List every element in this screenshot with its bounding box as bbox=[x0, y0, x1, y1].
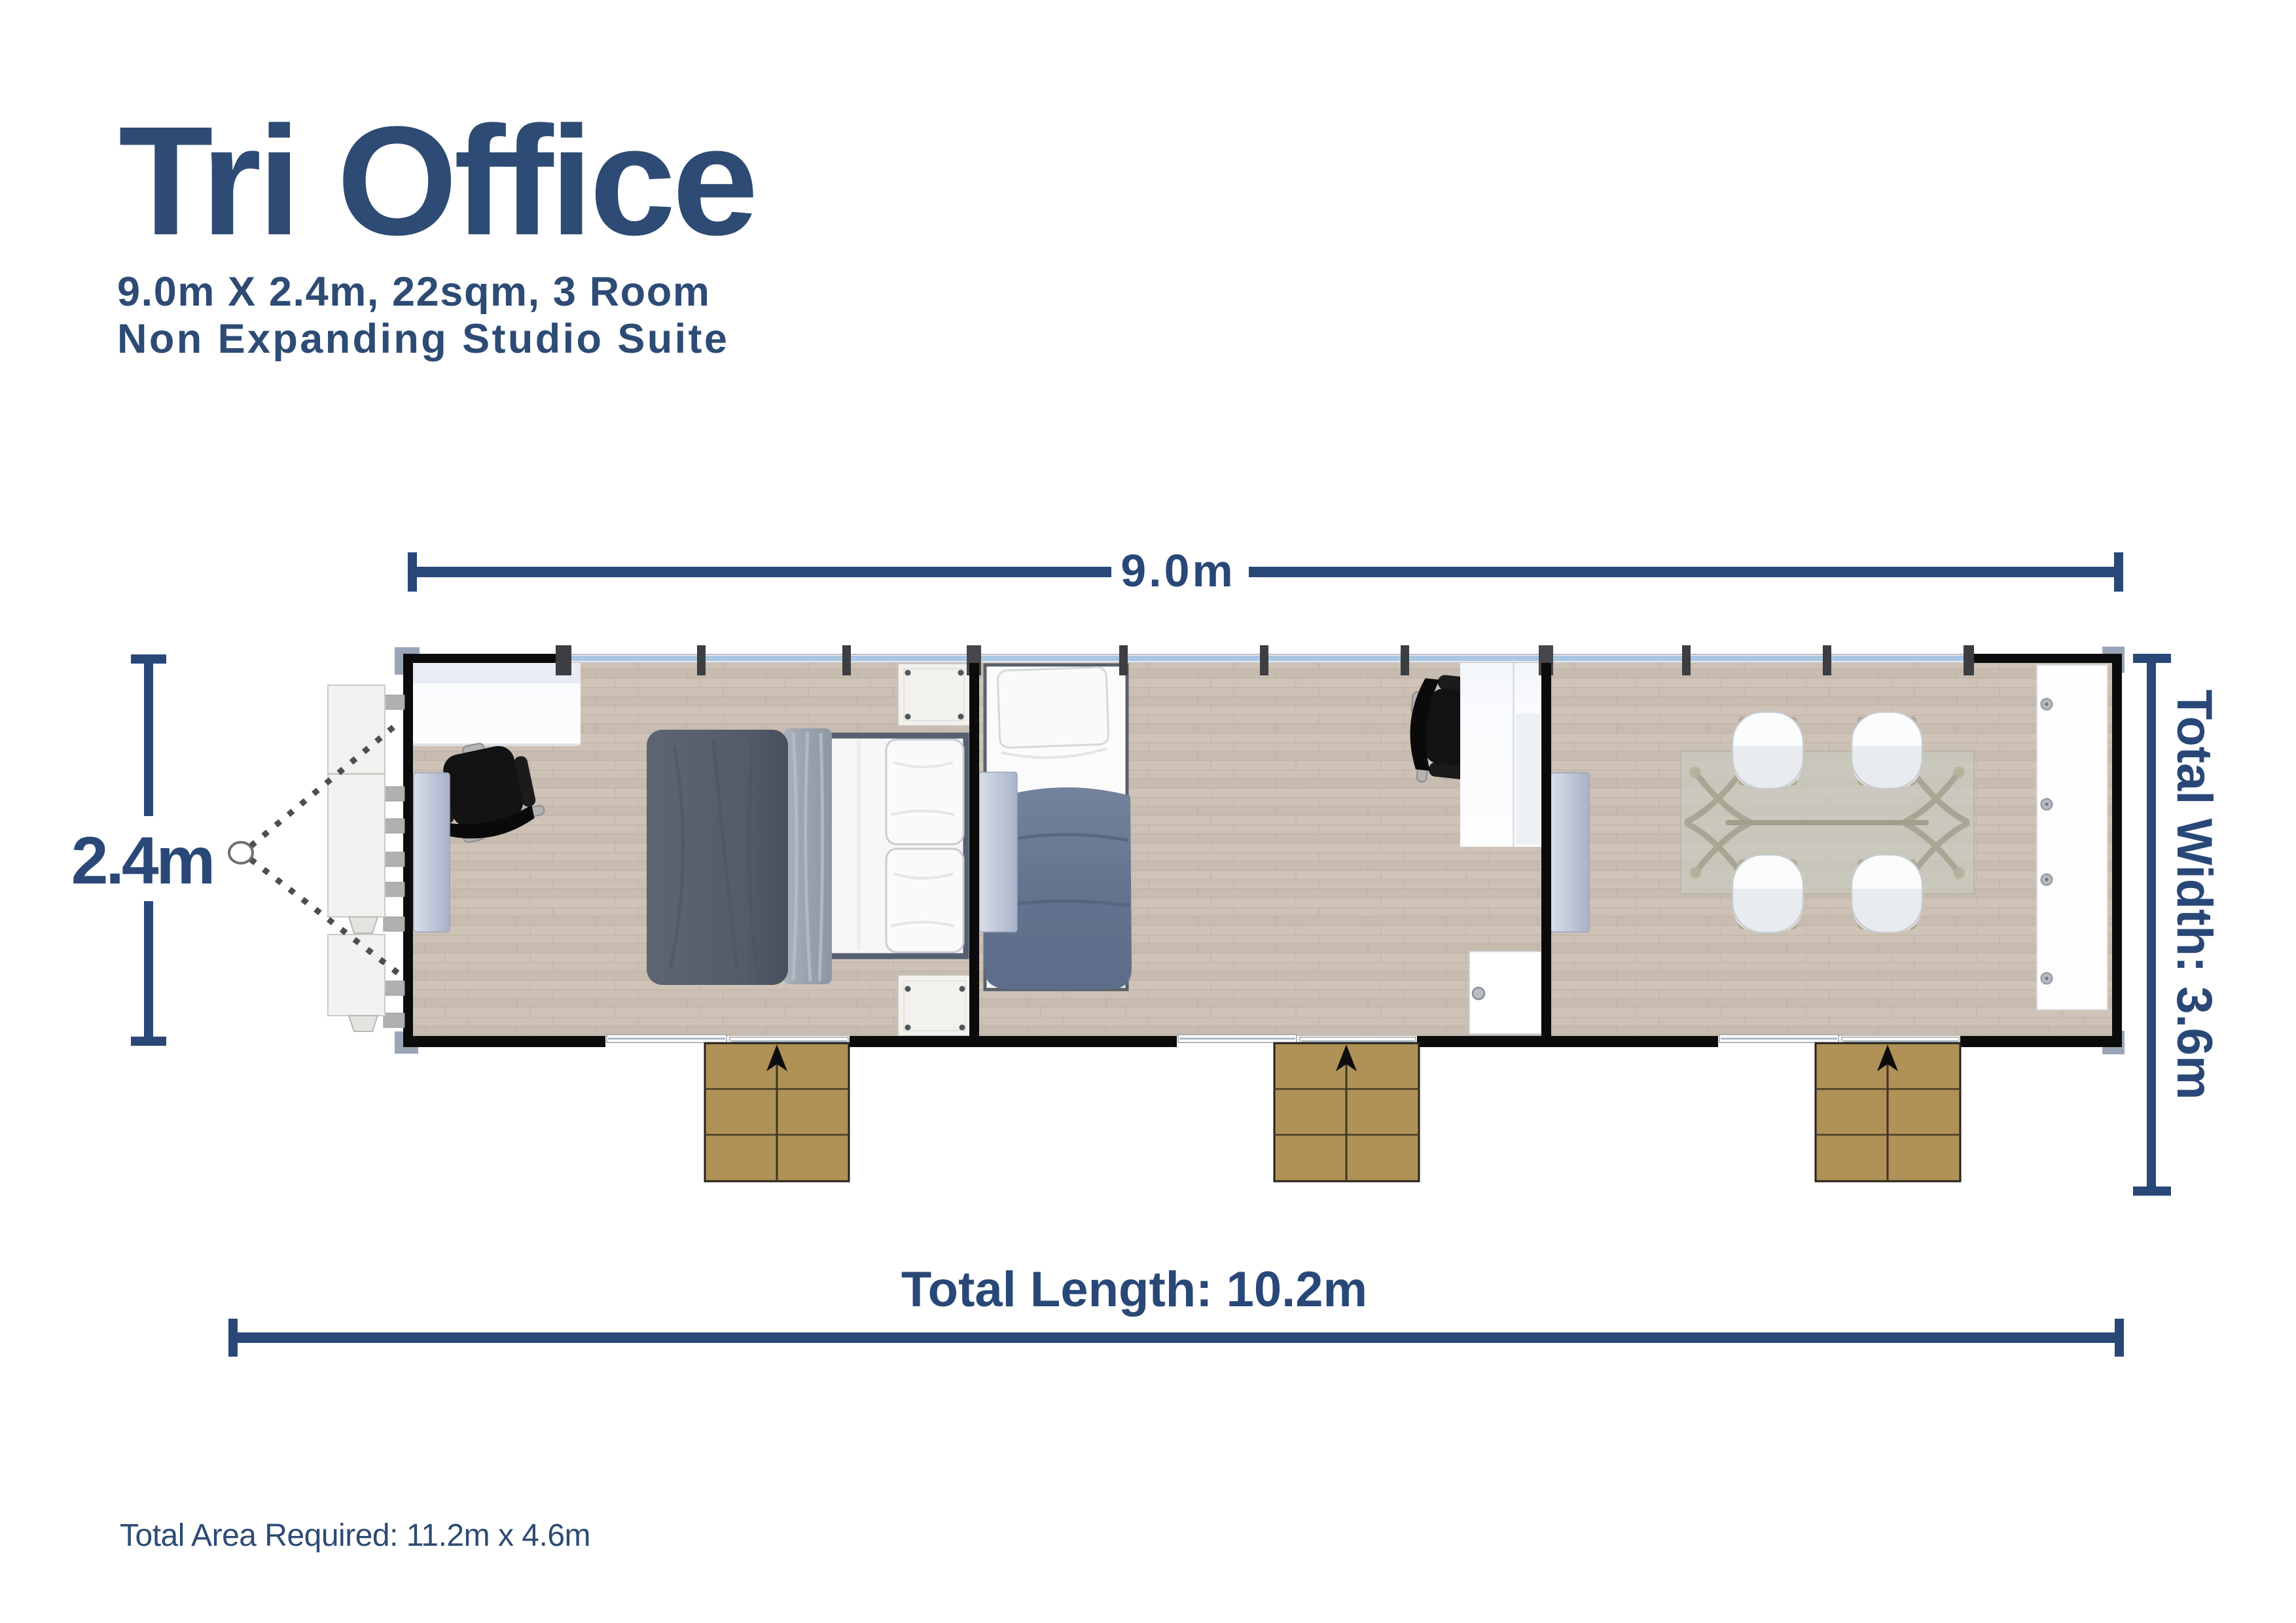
svg-text:Non Expanding Studio Suite: Non Expanding Studio Suite bbox=[117, 316, 729, 362]
svg-text:9.0m X 2.4m, 22sqm, 3 Room: 9.0m X 2.4m, 22sqm, 3 Room bbox=[117, 269, 710, 315]
svg-text:2.4m: 2.4m bbox=[71, 823, 213, 898]
svg-text:Total Length: 10.2m: Total Length: 10.2m bbox=[901, 1262, 1367, 1317]
svg-text:Total Area Required: 11.2m x 4: Total Area Required: 11.2m x 4.6m bbox=[120, 1518, 590, 1553]
svg-text:Tri Office: Tri Office bbox=[118, 94, 755, 268]
svg-text:Total Width: 3.6m: Total Width: 3.6m bbox=[2166, 690, 2222, 1100]
svg-text:9.0m: 9.0m bbox=[1121, 545, 1236, 596]
